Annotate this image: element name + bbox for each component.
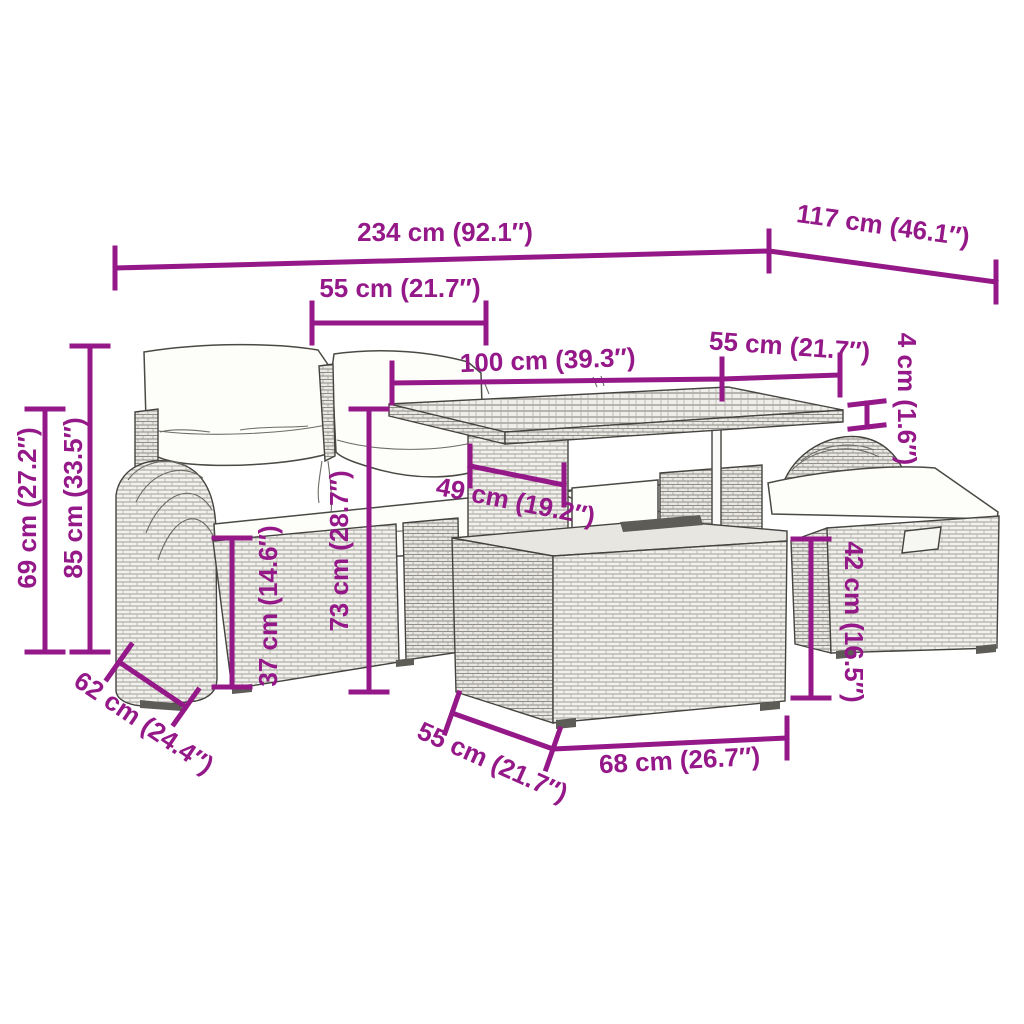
dim-total-depth: 117 cm (46.1″)	[769, 198, 996, 302]
dim-label-117: 117 cm (46.1″)	[795, 198, 972, 252]
dim-label-234: 234 cm (92.1″)	[357, 217, 533, 247]
dim-label-69: 69 cm (27.2″)	[12, 427, 42, 588]
dim-seat-width: 55 cm (21.7″)	[312, 273, 486, 343]
dim-height-69: 69 cm (27.2″)	[12, 409, 63, 652]
dim-chest-width: 68 cm (26.7″)	[553, 718, 787, 779]
dim-label-100: 100 cm (39.3″)	[459, 342, 636, 378]
dimension-diagram: 234 cm (92.1″) 117 cm (46.1″) 55 cm (21.…	[0, 0, 1024, 1024]
dim-label-55-top: 55 cm (21.7″)	[319, 273, 480, 303]
dim-label-42: 42 cm (16.5″)	[839, 541, 869, 702]
dim-label-37: 37 cm (14.6″)	[253, 525, 283, 686]
dim-label-4: 4 cm (1.6″)	[892, 333, 922, 465]
back-pillow-left	[144, 345, 334, 466]
storage-chest	[452, 515, 787, 729]
dim-label-73: 73 cm (28.7″)	[324, 470, 354, 631]
dim-label-55-table: 55 cm (21.7″)	[708, 325, 871, 366]
stool-handle	[902, 527, 941, 553]
diagram-canvas: 234 cm (92.1″) 117 cm (46.1″) 55 cm (21.…	[0, 0, 1024, 1024]
dim-label-85: 85 cm (33.5″)	[58, 417, 88, 578]
dim-back-height: 85 cm (33.5″)	[58, 346, 108, 652]
